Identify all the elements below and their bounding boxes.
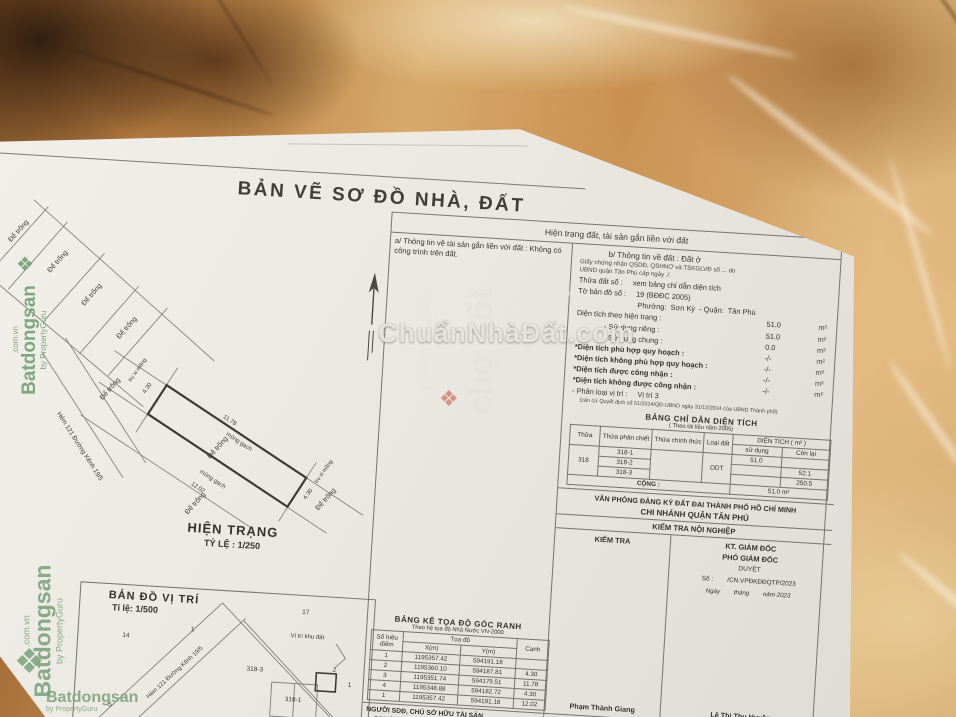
map-lot-id: 318-1 <box>284 696 301 704</box>
edge-note: móng gạch <box>225 432 253 453</box>
ref-number-line: Số : /CN.VPĐKĐĐQTP/2023 <box>702 575 796 588</box>
date-line: Ngày tháng năm 2023 <box>705 587 790 599</box>
parcel-label: Để trống <box>45 248 70 274</box>
map-parcel-number: 2 <box>332 667 336 674</box>
parcel-label: Để trống <box>114 314 139 340</box>
subject-location-outline <box>315 673 336 692</box>
marble-crack <box>65 46 275 117</box>
info-panel: Hiện trạng đất, tài sản gắn liền với đất… <box>357 212 843 717</box>
director-title-2: PHÓ GIÁM ĐỐC <box>722 552 778 566</box>
dim-left: 4.30 <box>142 381 154 395</box>
map-parcel-number: 17 <box>302 609 310 616</box>
marble-vein <box>885 358 956 510</box>
marble-vein <box>562 3 798 61</box>
coord-x: 1195357.42 <box>399 691 458 705</box>
marble-crack <box>187 0 273 85</box>
director-cell: KT. GIÁM ĐỐC PHÓ GIÁM ĐỐC DUYỆT Số : /CN… <box>660 536 831 717</box>
land-type: ODT <box>702 453 732 485</box>
parcel-label: Để trống <box>97 375 122 401</box>
edge-length: 12.02 <box>513 698 546 710</box>
point-id: 1 <box>367 690 400 702</box>
map-parcel-number: 1 <box>347 682 351 689</box>
col-canh: Cạnh <box>516 639 549 661</box>
map-parcel-number: 1 <box>191 626 195 633</box>
director-name: Lê Thị Thu Huyền <box>710 710 771 717</box>
marble-vein <box>896 550 956 660</box>
parcel-label: Để trống <box>79 281 104 307</box>
marble-vein <box>724 71 935 239</box>
survey-drawing-sheet: BẢN VẼ SƠ ĐỒ NHÀ, ĐẤT <box>0 95 893 717</box>
map-parcel-number: 14 <box>122 632 130 639</box>
signature-row: KIỂM TRA Phạm Thành Giang KT. GIÁM ĐỐC P… <box>544 528 831 717</box>
marble-vein <box>887 156 953 369</box>
map-lot-id: 318-3 <box>246 666 263 674</box>
parcel-label: Để trống <box>313 486 338 512</box>
chinh-thuc-empty <box>650 450 704 483</box>
dim-right: 4.30 <box>303 488 315 502</box>
location-map-box: 14 1 17 5 318-3 2 1 318-1 Vị trí khu đất… <box>70 581 376 717</box>
approve-label: DUYỆT <box>738 565 761 573</box>
col-point: Số hiệu điểm <box>370 630 403 652</box>
coord-table: Số hiệu điểm Tọa độ Cạnh X(m) Y(m) 1 119… <box>367 629 550 711</box>
checker-cell: KIỂM TRA Phạm Thành Giang <box>544 529 671 717</box>
check-label: KIỂM TRA <box>594 535 630 548</box>
corner-note: trụ xi măng <box>314 459 335 485</box>
parcel-id: 318 <box>567 445 599 477</box>
photo-of-document: BẢN VẼ SƠ ĐỒ NHÀ, ĐẤT <box>0 0 956 717</box>
subject-parcel-label: Để trống <box>205 434 230 460</box>
street-label: Hẻm 121 Đường Kênh 19/5 <box>55 411 104 483</box>
col-thua: Thửa <box>569 425 600 447</box>
subject-parcel-outline <box>143 384 312 508</box>
column-b: b/ Thông tin về đất : Đất ở Giấy chứng n… <box>544 244 848 717</box>
coord-y: 594191.18 <box>457 695 514 708</box>
map-street-label: Hẻm 121 Đường Kênh 19/5 <box>146 645 205 700</box>
col-loai-dat: Loại đất <box>704 433 733 455</box>
site-marker-label: Vị trí khu đất <box>290 633 324 641</box>
coordinate-table-block: BẢNG KÊ TỌA ĐỘ GÓC RANH Theo hệ tọa độ N… <box>367 610 545 710</box>
column-a: a/ Thông tin về tài sản gắn liền với đất… <box>363 233 573 713</box>
marble-crack <box>915 0 956 102</box>
area-table-block: BẢNG CHỈ DẪN DIỆN TÍCH ( Theo tài liệu n… <box>566 405 832 501</box>
parcel-label: Để trống <box>183 490 208 516</box>
map-parcel-number: 5 <box>108 701 112 708</box>
current-state-sketch: Để trống Để trống Để trống Để trống Để t… <box>0 196 393 536</box>
under-sheet-edge <box>288 143 528 146</box>
